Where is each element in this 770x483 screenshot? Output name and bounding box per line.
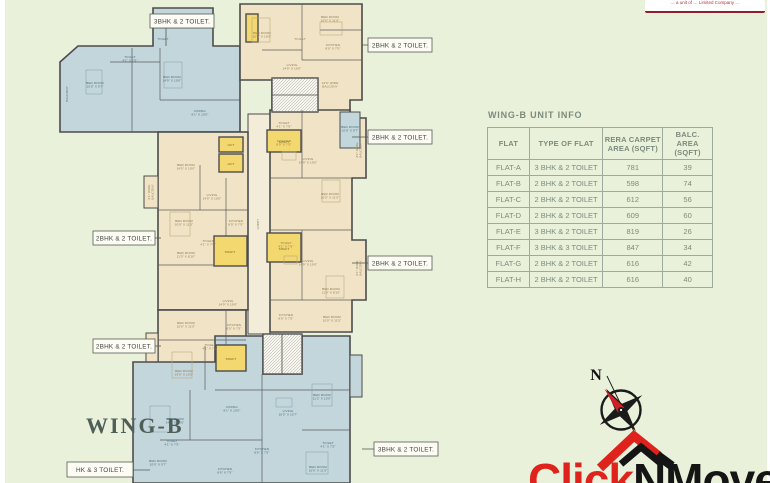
room-label: BED ROOM10'0" X 9'7" (341, 125, 359, 133)
room-label: 6'1" WIDEBALCONY (355, 142, 363, 158)
logo-wordmark: ClickNMove (528, 454, 770, 483)
table-row: FLAT-G2 BHK & 2 TOILET61642 (488, 256, 713, 272)
table-cell: 3 BHK & 2 TOILET (529, 160, 603, 176)
room-label: TOILET4'1" X 7'5" (164, 439, 179, 447)
room-label: BED ROOM10'0" X 11'5" (175, 219, 194, 227)
svg-text:2BHK & 2 TOILET.: 2BHK & 2 TOILET. (96, 344, 152, 351)
room-label: LOBBY (256, 219, 260, 230)
unit-table-body: FLAT-A3 BHK & 2 TOILET78139FLAT-B2 BHK &… (488, 160, 713, 288)
table-cell: FLAT-H (488, 272, 530, 288)
compass-north-label: N (590, 367, 602, 384)
table-cell: FLAT-B (488, 176, 530, 192)
table-cell: 2 BHK & 2 TOILET (529, 256, 603, 272)
unit-info-table: FLATTYPE OF FLATRERA CARPET AREA (SQFT)B… (487, 127, 713, 288)
wing-title: WING-B (86, 413, 184, 438)
room-label: BED ROOM14'9" X 10'0" (163, 75, 182, 83)
table-cell: 3 BHK & 2 TOILET (529, 224, 603, 240)
room-label: BALCONY (65, 86, 69, 102)
table-cell: 2 BHK & 2 TOILET (529, 176, 603, 192)
table-cell: 26 (663, 224, 713, 240)
table-cell: FLAT-D (488, 208, 530, 224)
logo-word-click: Click (528, 454, 634, 483)
table-cell: 2 BHK & 2 TOILET (529, 272, 603, 288)
room-label: BED ROOM14'0" X 10'0" (175, 369, 194, 377)
table-row: FLAT-A3 BHK & 2 TOILET78139 (488, 160, 713, 176)
table-cell: 40 (663, 272, 713, 288)
room-label: BED ROOM10'0" X 11'5" (309, 465, 328, 473)
table-cell: 34 (663, 240, 713, 256)
room-label: BED ROOM11'0" X 8'10" (322, 287, 341, 295)
table-row: FLAT-D2 BHK & 2 TOILET60960 (488, 208, 713, 224)
table-cell: 42 (663, 256, 713, 272)
room-label: 6'1" WIDEBALCONY (147, 184, 155, 200)
svg-text:3BHK & 2 TOILET.: 3BHK & 2 TOILET. (154, 19, 210, 26)
table-cell: 39 (663, 160, 713, 176)
table-row: FLAT-E3 BHK & 2 TOILET81926 (488, 224, 713, 240)
table-cell: 60 (663, 208, 713, 224)
room-label: SHAFT (279, 140, 290, 144)
unit-table-column-header: TYPE OF FLAT (529, 128, 603, 160)
room-label: KITCHEN8'0" X 7'5" (278, 313, 293, 321)
table-cell: FLAT-F (488, 240, 530, 256)
table-cell: 819 (603, 224, 663, 240)
room-label: TOILET4'1" X 7'5" (200, 239, 215, 247)
room-label: BED ROOM14'0" X 10'0" (177, 163, 196, 171)
brand-logo: ClickNMove (528, 435, 770, 483)
table-cell: 616 (603, 272, 663, 288)
table-row: FLAT-B2 BHK & 2 TOILET59874 (488, 176, 713, 192)
unit-table-column-header: RERA CARPET AREA (SQFT) (603, 128, 663, 160)
room-label: LIFT (228, 162, 235, 166)
table-row: FLAT-F3 BHK & 3 TOILET84734 (488, 240, 713, 256)
unit-callout-2bhk-left-lower: 2BHK & 2 TOILET. (93, 339, 161, 353)
unit-info-panel: WING-B UNIT INFO FLATTYPE OF FLATRERA CA… (487, 110, 713, 288)
room-label: BED ROOM11'2" X 10'0" (313, 393, 332, 401)
room-label: BED ROOM10'0" X 9'7" (149, 459, 167, 467)
table-cell: 781 (603, 160, 663, 176)
table-cell: 598 (603, 176, 663, 192)
table-cell: 847 (603, 240, 663, 256)
room-label: BED ROOM11'0" X 8'10" (177, 251, 196, 259)
svg-text:2BHK & 2 TOILET.: 2BHK & 2 TOILET. (372, 43, 428, 50)
room-label: BED ROOM10'0" X 11'5" (323, 315, 342, 323)
unit-callout-2bhk-top-right: 2BHK & 2 TOILET. (362, 38, 432, 52)
room-label: KITCHEN8'0" X 7'5" (226, 323, 241, 331)
room-label: BED ROOM10'0" X 11'6" (321, 15, 340, 23)
table-row: FLAT-H2 BHK & 2 TOILET61640 (488, 272, 713, 288)
table-cell: 2 BHK & 2 TOILET (529, 208, 603, 224)
room-label: BED ROOM10'4" X 10'0" (253, 31, 272, 39)
table-row: FLAT-C2 BHK & 2 TOILET61256 (488, 192, 713, 208)
svg-text:2BHK & 2 TOILET.: 2BHK & 2 TOILET. (96, 236, 152, 243)
table-cell: 616 (603, 256, 663, 272)
table-cell: FLAT-C (488, 192, 530, 208)
unit-table-column-header: FLAT (488, 128, 530, 160)
unit-info-title: WING-B UNIT INFO (488, 110, 713, 120)
room-label: TOILET4'1" X 7'5" (320, 441, 335, 449)
table-cell: 56 (663, 192, 713, 208)
room-label: 6'1" WIDEBALCONY (355, 260, 363, 276)
room-label: KITCHEN8'0" X 7'5" (228, 219, 243, 227)
page: { "palette": { "background": "#eaf1da", … (0, 0, 770, 483)
logo-word-nmove: NMove (633, 454, 770, 483)
room-label: KITCHEN8'0" X 7'5" (325, 43, 340, 51)
svg-text:3BHK & 2 TOILET.: 3BHK & 2 TOILET. (378, 447, 434, 454)
room-label: SHAFT (225, 250, 236, 254)
table-cell: FLAT-G (488, 256, 530, 272)
table-cell: 609 (603, 208, 663, 224)
unit-callout-2bhk-left-upper: 2BHK & 2 TOILET. (93, 231, 161, 245)
balcony-bump-right (350, 355, 362, 397)
room-label: SHAFT (279, 247, 290, 251)
room-label: TOILET (157, 37, 168, 41)
svg-text:2BHK & 2 TOILET.: 2BHK & 2 TOILET. (372, 135, 428, 142)
room-label: BED ROOM10'0" X 11'5" (177, 321, 196, 329)
room-label: TOILET (294, 37, 305, 41)
table-cell: FLAT-E (488, 224, 530, 240)
table-cell: FLAT-A (488, 160, 530, 176)
room-label: KITCHEN8'6" X 7'5" (254, 447, 269, 455)
room-label: SHAFT (226, 357, 237, 361)
unit-table-head: FLATTYPE OF FLATRERA CARPET AREA (SQFT)B… (488, 128, 713, 160)
table-cell: 2 BHK & 2 TOILET (529, 192, 603, 208)
table-cell: 612 (603, 192, 663, 208)
room-label: LIFT (228, 143, 235, 147)
svg-text:2BHK & 2 TOILET.: 2BHK & 2 TOILET. (372, 261, 428, 268)
room-label: KITCHEN8'6" X 7'5" (217, 467, 232, 475)
room-label: BED ROOM10'0" X 11'5" (321, 192, 340, 200)
room-label: BED ROOM10'0" X 9'7" (86, 81, 104, 89)
svg-text:HK & 3 TOILET.: HK & 3 TOILET. (76, 467, 124, 474)
unit-table-column-header: BALC. AREA (SQFT) (663, 128, 713, 160)
room-label: TOILET4'1" X 7'5" (122, 55, 137, 63)
room-label: TOILET4'1" X 7'5" (276, 121, 291, 129)
room-label: 14'9" WIDEBALCONY (322, 81, 339, 89)
unit-callout-3bhk-bottom: 3BHK & 2 TOILET. (362, 442, 438, 456)
disclaimer-text: … a unit of … Limited Company … (645, 0, 765, 13)
table-cell: 3 BHK & 3 TOILET (529, 240, 603, 256)
table-cell: 74 (663, 176, 713, 192)
room-label: TOILET4'1" X 7'5" (202, 343, 217, 351)
